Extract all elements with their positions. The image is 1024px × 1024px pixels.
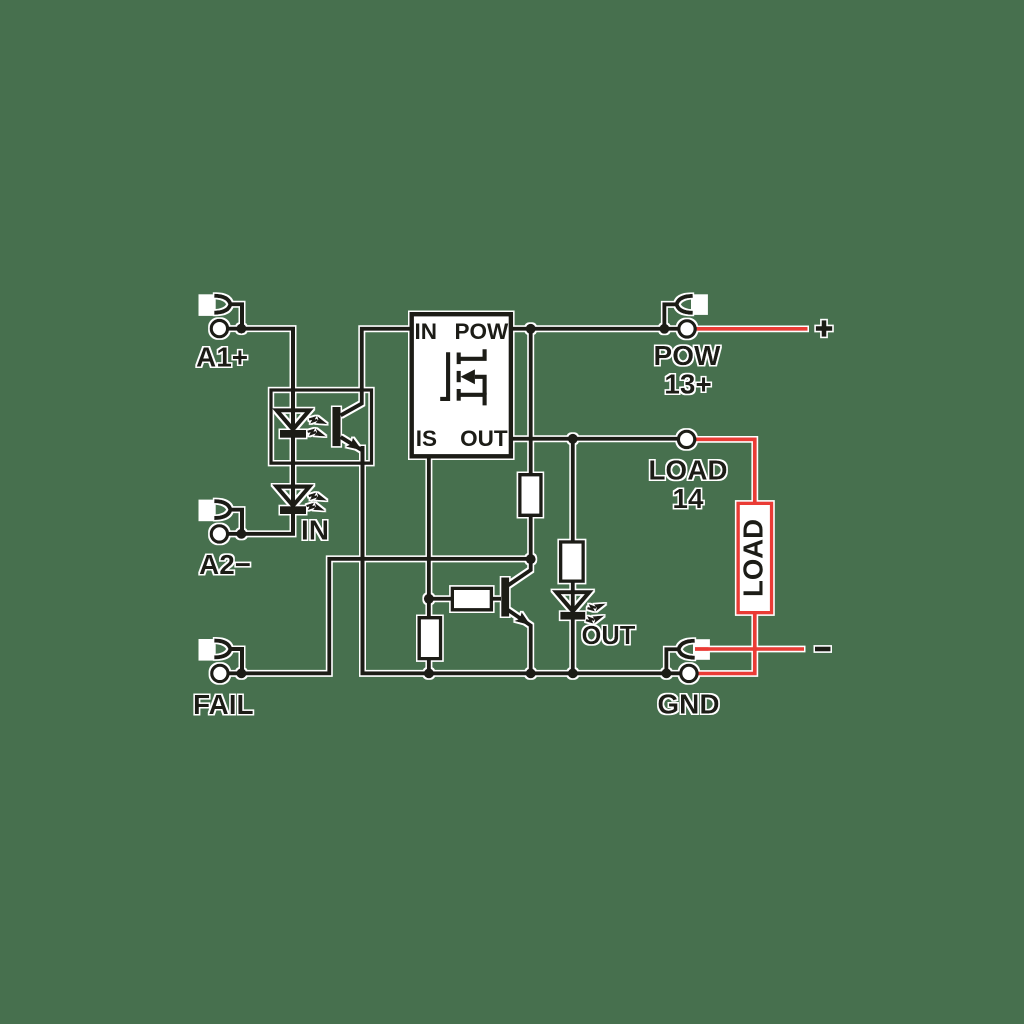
svg-text:14: 14 (672, 483, 704, 514)
svg-text:IS: IS (416, 426, 437, 451)
svg-text:13+: 13+ (664, 368, 712, 399)
svg-text:FAIL: FAIL (193, 689, 254, 720)
svg-text:OUT: OUT (582, 622, 636, 650)
svg-text:A2−: A2− (199, 549, 251, 580)
svg-text:POW: POW (654, 340, 721, 371)
svg-text:LOAD: LOAD (648, 455, 727, 486)
svg-text:A1+: A1+ (196, 342, 248, 373)
svg-text:LOAD: LOAD (738, 519, 769, 597)
svg-text:OUT: OUT (460, 426, 508, 451)
svg-text:IN: IN (415, 319, 438, 344)
svg-text:POW: POW (455, 319, 510, 344)
svg-text:IN: IN (301, 514, 329, 545)
svg-text:GND: GND (657, 689, 719, 720)
